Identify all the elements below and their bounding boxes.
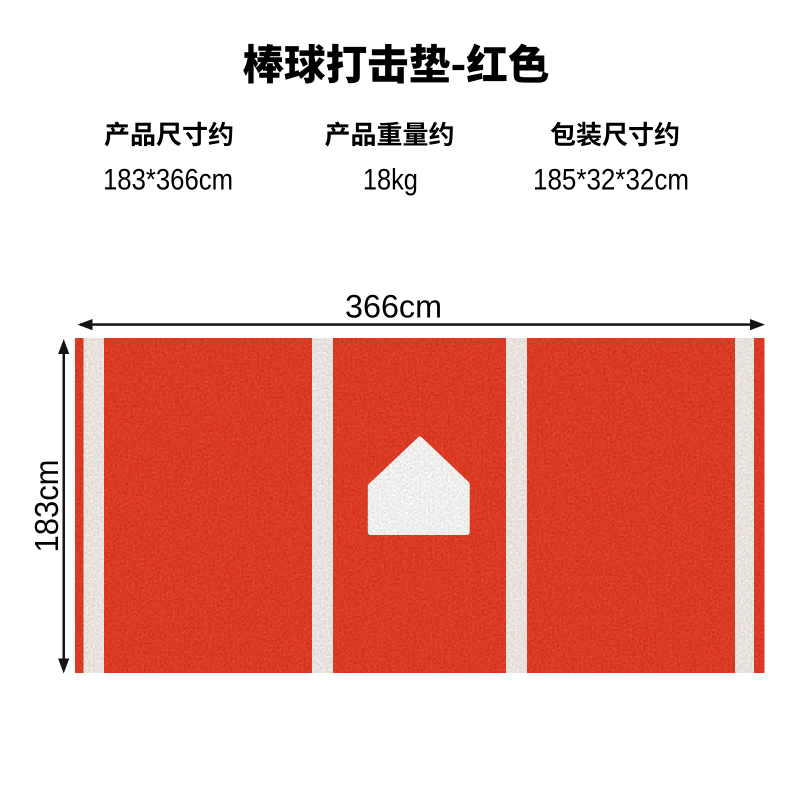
svg-text:183*366cm: 183*366cm [103, 165, 233, 197]
svg-text:18kg: 18kg [363, 165, 418, 197]
svg-text:183cm: 183cm [28, 460, 65, 553]
svg-text:185*32*32cm: 185*32*32cm [533, 165, 689, 197]
svg-text:366cm: 366cm [345, 289, 442, 325]
